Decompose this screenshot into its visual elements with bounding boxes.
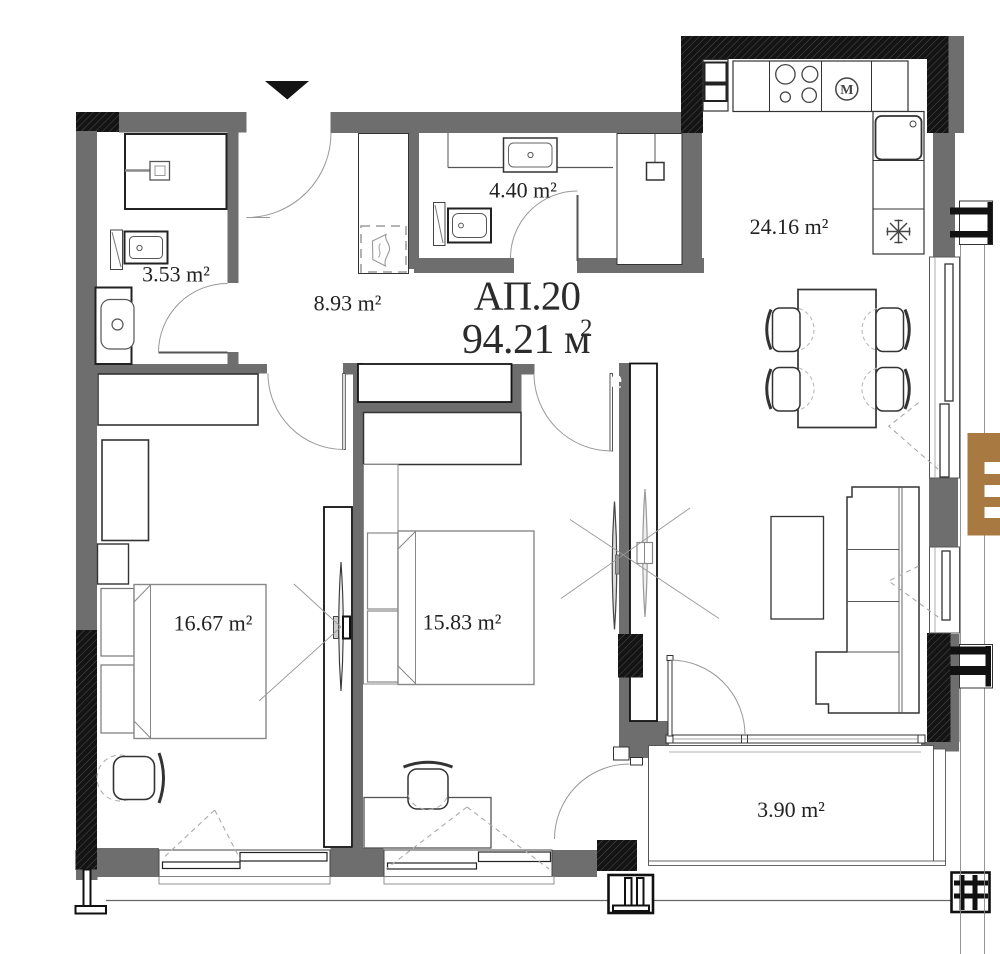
svg-text:94.21 м: 94.21 м	[462, 317, 590, 363]
svg-text:4.40 m²: 4.40 m²	[489, 178, 557, 203]
svg-text:16.67 m²: 16.67 m²	[174, 611, 253, 636]
svg-text:2: 2	[580, 315, 593, 342]
svg-text:3.53 m²: 3.53 m²	[142, 262, 210, 287]
svg-text:3.90 m²: 3.90 m²	[757, 797, 825, 822]
svg-text:е: е	[610, 364, 622, 394]
svg-text:M: M	[840, 83, 853, 98]
svg-text:24.16 m²: 24.16 m²	[750, 214, 829, 239]
svg-text:15.83 m²: 15.83 m²	[423, 610, 502, 635]
svg-text:АП.20: АП.20	[474, 273, 580, 319]
svg-text:8.93 m²: 8.93 m²	[314, 291, 382, 316]
